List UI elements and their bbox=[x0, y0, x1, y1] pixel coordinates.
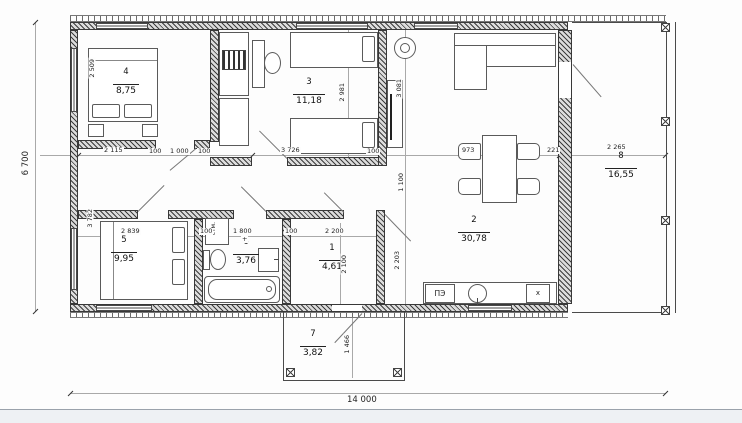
room-label-8: 8 16,55 bbox=[598, 152, 644, 181]
dim-1466: 1 466 bbox=[344, 334, 351, 355]
dim-973: 973 bbox=[461, 147, 475, 154]
room-area: 30,78 bbox=[458, 232, 490, 244]
dim-1100: 1 100 bbox=[398, 172, 405, 193]
dim-221: 221 bbox=[546, 147, 560, 154]
sofa-chaise bbox=[454, 45, 487, 90]
dim-line-bottom bbox=[70, 393, 666, 394]
window-room5-left bbox=[71, 228, 77, 290]
room-area: 3,76 bbox=[233, 254, 259, 266]
tv-screen bbox=[390, 94, 392, 140]
room-number: 7 bbox=[293, 330, 333, 340]
dim-line-mid bbox=[40, 155, 666, 156]
room-number: 4 bbox=[105, 68, 147, 78]
nightstand bbox=[142, 124, 158, 137]
window-room2 bbox=[414, 23, 458, 29]
dim-3782: 3 782 bbox=[87, 208, 94, 229]
room-label-7: 7 3,82 bbox=[293, 330, 333, 359]
dim-100: 100 bbox=[199, 228, 213, 235]
dining-chair bbox=[517, 178, 540, 195]
bed-room4-blanket-line bbox=[89, 60, 157, 61]
dim-2115: 2 115 bbox=[103, 147, 124, 154]
window-room5-bottom bbox=[96, 305, 152, 311]
top-cladding-band bbox=[70, 15, 666, 22]
terrace-outer-edge bbox=[675, 22, 676, 313]
room-label-2: 2 30,78 bbox=[452, 216, 496, 245]
dim-2100: 2 100 bbox=[341, 254, 348, 275]
wall-room4-closet bbox=[210, 30, 219, 142]
toilet-bowl bbox=[210, 249, 226, 270]
dim-2981: 2 981 bbox=[339, 82, 346, 103]
wall-below-room3 bbox=[287, 157, 382, 166]
sheet-margin bbox=[0, 410, 742, 423]
room-number: 8 bbox=[598, 152, 644, 162]
toilet-tank bbox=[203, 250, 210, 270]
room-number: 2 bbox=[452, 216, 496, 226]
wall-corridor-c bbox=[266, 210, 344, 219]
door-swing-room5 bbox=[138, 185, 165, 212]
pillow bbox=[172, 227, 185, 253]
room-number: 5 bbox=[103, 236, 145, 246]
dim-2203: 2 203 bbox=[394, 250, 401, 271]
pillow bbox=[172, 259, 185, 285]
room-number: 1 bbox=[313, 244, 351, 254]
wardrobe-shelves bbox=[222, 50, 246, 70]
dim-1000: 1 000 bbox=[169, 148, 190, 155]
desk-chair bbox=[264, 52, 281, 74]
dim-100: 100 bbox=[284, 228, 298, 235]
terrace-column bbox=[661, 23, 670, 32]
bathtub-drain bbox=[266, 286, 272, 292]
dining-chair bbox=[517, 143, 540, 160]
terrace-bottom-edge bbox=[572, 312, 666, 313]
boiler-inner bbox=[400, 43, 410, 53]
porch-post bbox=[286, 368, 295, 377]
dim-100: 100 bbox=[148, 148, 162, 155]
ref-line-v1 bbox=[405, 30, 406, 304]
window-room3 bbox=[296, 23, 368, 29]
dim-3081: 3 081 bbox=[396, 78, 403, 99]
dim-2509: 2 509 bbox=[89, 58, 96, 79]
room-area: 9,95 bbox=[111, 252, 137, 264]
floor-plan-sheet: ПЭ х стм. 4 8,75 3 11,18 2 30,78 8 16,55… bbox=[0, 0, 742, 423]
porch-right-edge bbox=[404, 312, 405, 380]
door-swing-bath bbox=[241, 186, 266, 211]
dining-chair bbox=[458, 178, 481, 195]
dim-100: 100 bbox=[197, 148, 211, 155]
level-plus-mark: + bbox=[241, 236, 248, 243]
sink-tap bbox=[477, 298, 478, 305]
sofa-seat bbox=[486, 45, 556, 67]
entrance-opening bbox=[332, 305, 362, 311]
dim-2200: 2 200 bbox=[324, 228, 345, 235]
dim-2839: 2 839 bbox=[120, 228, 141, 235]
wall-room1-kitchen bbox=[376, 210, 385, 304]
porch-bottom-edge bbox=[283, 380, 405, 381]
dim-2265: 2 265 bbox=[606, 144, 627, 151]
porch-post bbox=[393, 368, 402, 377]
dim-3726: 3 726 bbox=[280, 147, 301, 154]
dim-1800: 1 800 bbox=[232, 228, 253, 235]
porch-left-edge bbox=[283, 312, 284, 380]
terrace-inner-edge bbox=[666, 22, 667, 313]
dim-overall-height: 6 700 bbox=[22, 150, 31, 176]
dim-tick bbox=[663, 391, 669, 397]
room-number: 3 bbox=[288, 78, 330, 88]
room-label-3: 3 11,18 bbox=[288, 78, 330, 107]
pillow bbox=[362, 36, 375, 62]
room-label-4: 4 8,75 bbox=[105, 68, 147, 97]
dining-table bbox=[482, 135, 517, 203]
bath-sink-tap bbox=[274, 259, 279, 260]
window-room4 bbox=[96, 23, 148, 29]
dim-overall-width: 14 000 bbox=[346, 396, 378, 405]
door-swing-kitchen bbox=[385, 214, 411, 241]
dim-line-left bbox=[35, 22, 36, 312]
room-area: 3,82 bbox=[300, 346, 326, 358]
room-area: 8,75 bbox=[113, 84, 139, 96]
bottom-pile-band bbox=[70, 312, 568, 318]
room-area: 11,18 bbox=[293, 94, 325, 106]
terrace-column bbox=[661, 306, 670, 315]
wardrobe-lower bbox=[219, 98, 249, 146]
window-kitchen bbox=[468, 305, 512, 311]
dim-tick bbox=[33, 309, 39, 315]
nightstand bbox=[88, 124, 104, 137]
terrace-top-edge bbox=[572, 22, 666, 23]
room-label-5: 5 9,95 bbox=[103, 236, 145, 265]
pillow bbox=[362, 122, 375, 148]
pillow bbox=[92, 104, 120, 118]
dim-100: 100 bbox=[366, 148, 380, 155]
terrace-column bbox=[661, 117, 670, 126]
terrace-door-opening bbox=[559, 62, 571, 98]
stove-label: ПЭ bbox=[425, 290, 455, 298]
wall-below-closet bbox=[210, 157, 252, 166]
pillow bbox=[124, 104, 152, 118]
door-swing-terrace bbox=[573, 64, 602, 97]
wall-room3-room2 bbox=[378, 30, 387, 166]
window-room4-left bbox=[71, 48, 77, 112]
fridge-label: х bbox=[526, 290, 550, 297]
room-area: 16,55 bbox=[605, 168, 637, 180]
terrace-column bbox=[661, 216, 670, 225]
